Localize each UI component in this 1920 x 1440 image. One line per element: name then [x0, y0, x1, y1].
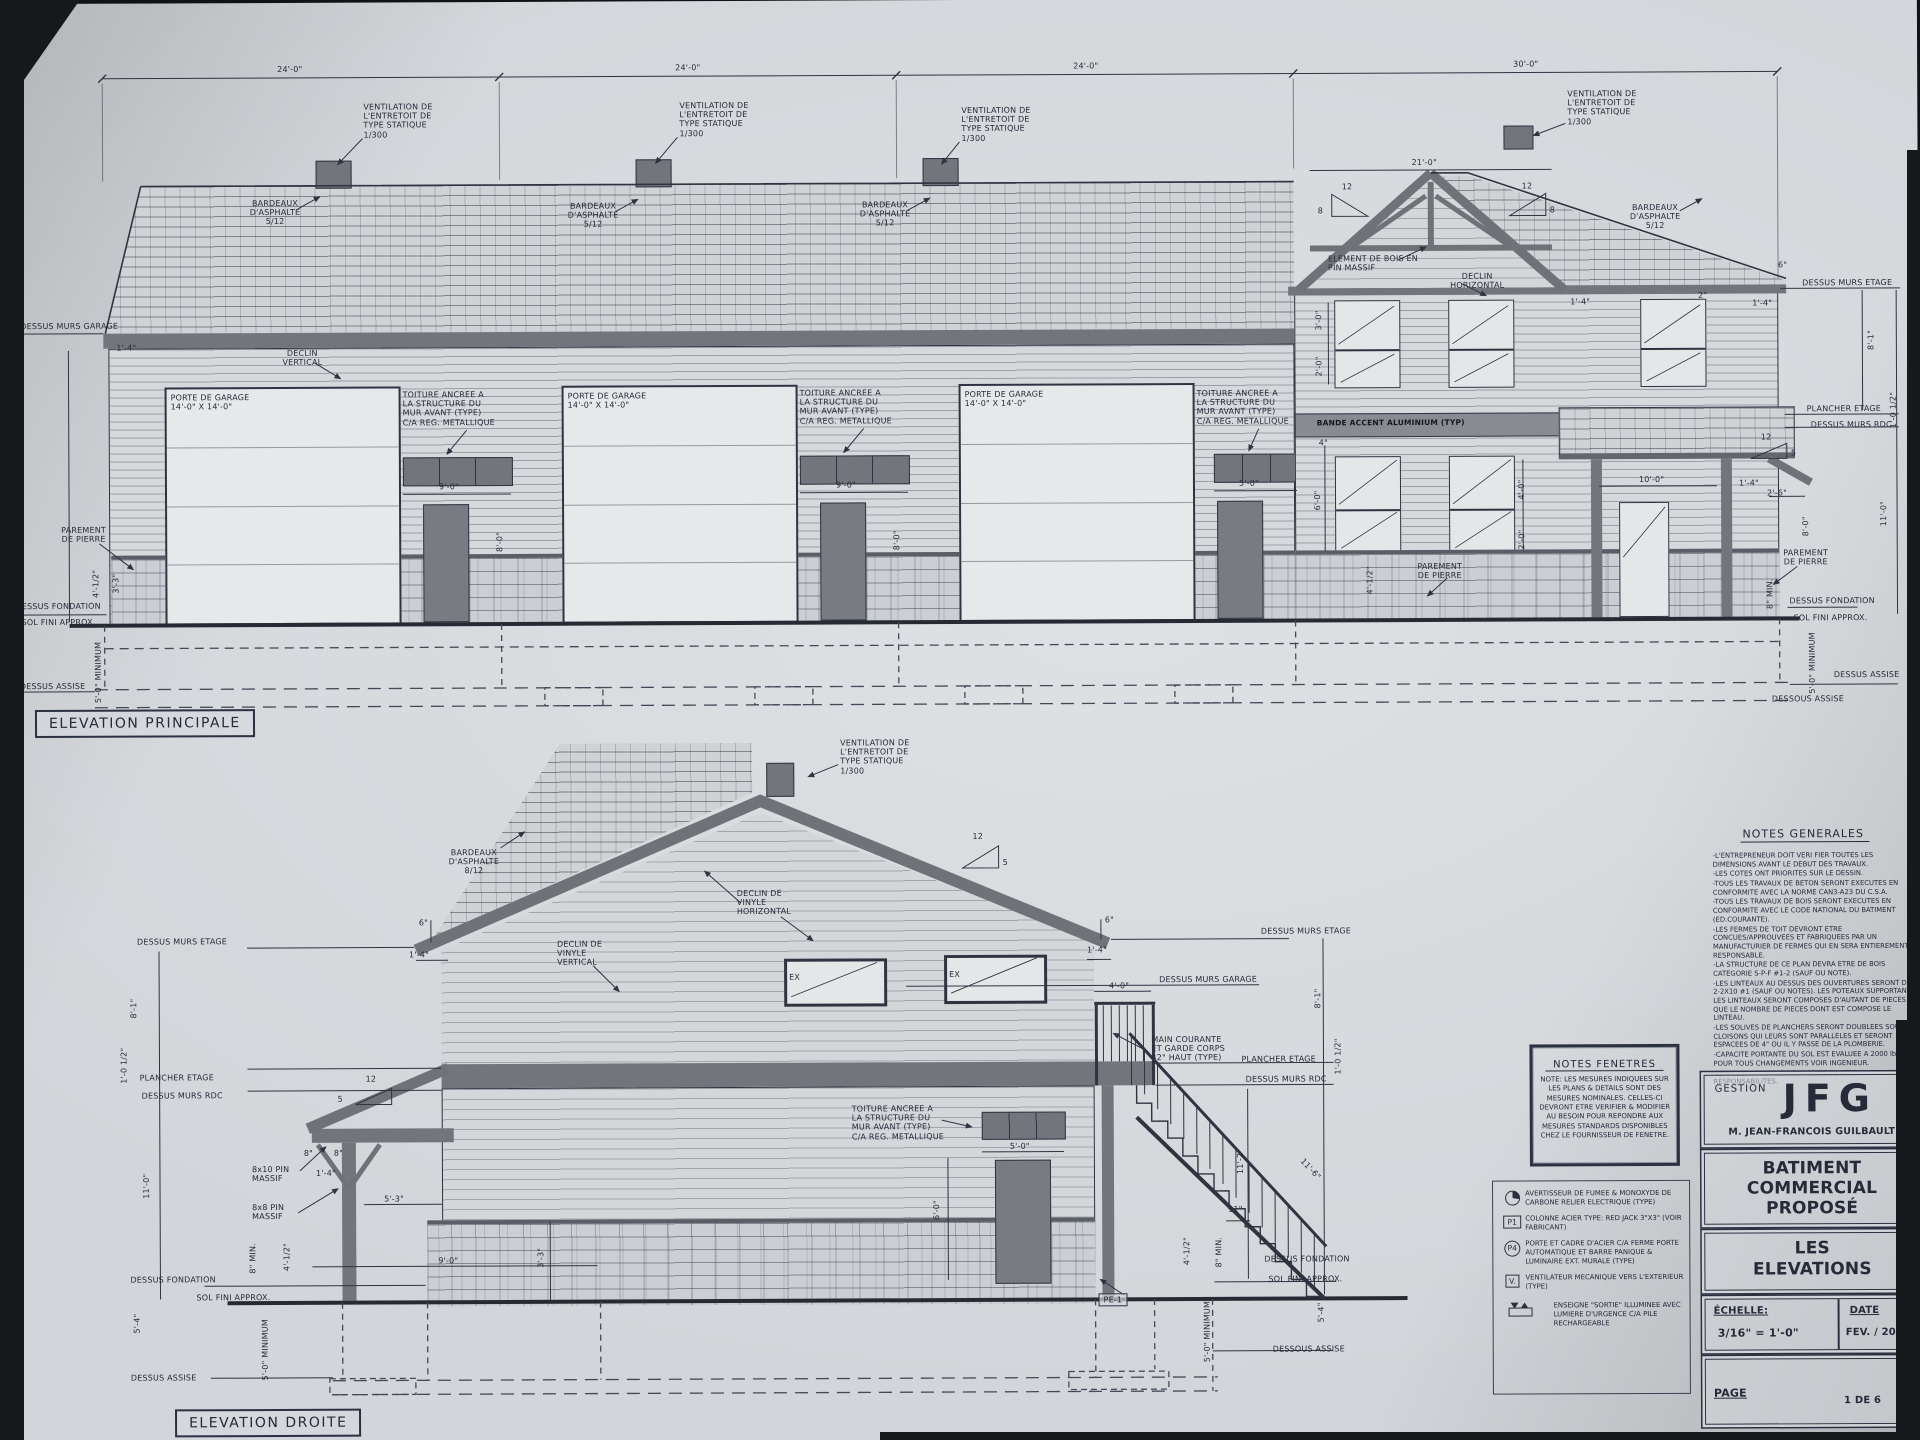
photo-edge-bottom [880, 1432, 1920, 1440]
photo-edge-left [0, 0, 24, 1440]
legend-item: AVERTISSEUR DE FUMEE & MONOXYDE DE CARBO… [1499, 1189, 1683, 1208]
lower-window [1449, 456, 1515, 554]
level-label: DESSOUS ASSISE [1772, 694, 1844, 704]
entry-canopy [982, 1112, 1066, 1140]
dim-label: 11'-2" [1236, 1149, 1245, 1174]
level-label: DESSUS FONDATION [15, 602, 100, 612]
landing-post [1102, 1085, 1115, 1297]
stone-note: PAREMENT DE PIERRE [1783, 548, 1828, 567]
note-line: -L'ENTREPRENEUR DOIT VERI FIER TOUTES LE… [1713, 851, 1919, 869]
lower-window [1335, 456, 1401, 554]
legend: AVERTISSEUR DE FUMEE & MONOXYDE DE CARBO… [1492, 1180, 1691, 1395]
dim-label: 11'-0" [1879, 501, 1888, 526]
slope-label: 5 [338, 1095, 343, 1104]
note-line: -LES COTES ONT PRIORITES SUR LE DESSIN. [1713, 869, 1919, 879]
upper-window [1334, 300, 1400, 388]
floor-band [441, 1061, 1153, 1088]
porch-door [1619, 502, 1670, 617]
shingle-note: BARDEAUX D'ASPHALTE 8/12 [449, 848, 500, 876]
level-label: DESSUS ASSISE [131, 1373, 197, 1382]
dim-label: 8'-1" [129, 999, 138, 1019]
vent-note: VENTILATION DE L'ENTRETOIT DE TYPE STATI… [679, 101, 749, 138]
door-label: PORTE DE GARAGE 14'-0" X 14'-0" [965, 390, 1044, 409]
dim-label: 1'-4" [116, 344, 136, 353]
dim-label: 8" MIN. [1214, 1237, 1223, 1268]
dim-label: 1'-4" [1570, 297, 1590, 306]
slope-label: 8 [1318, 206, 1323, 215]
scale-value: 3/16" = 1'-0" [1718, 1327, 1799, 1340]
dim-label: 4" [1319, 438, 1328, 447]
dim-label: 8'-0" [1801, 516, 1810, 536]
scale-label: ÉCHELLE: [1714, 1305, 1769, 1317]
garage-roof-vent [636, 159, 672, 187]
level-label: PLANCHER ETAGE [1807, 404, 1881, 414]
shingle-note: BARDEAUX D'ASPHALTE 5/12 [250, 199, 301, 227]
slope-label: 5 [1791, 448, 1796, 457]
smoke-detector-icon [1505, 1191, 1520, 1206]
dim-label: 8" MIN. [1765, 578, 1774, 609]
dim-label: 24'-0" [277, 65, 302, 74]
titleblock-scale-date: ÉCHELLE: 3/16" = 1'-0" DATE FEV. / 2025 [1705, 1298, 1920, 1351]
ventilator-icon: V. [1505, 1274, 1520, 1287]
garage-door-1 [165, 386, 402, 625]
porch-post-8x8 [342, 1143, 357, 1301]
legend-item: ENSEIGNE "SORTIE" ILLUMINEE AVEC LUMIERE… [1500, 1301, 1684, 1329]
elevation-principale-title: ELEVATION PRINCIPALE [35, 709, 255, 738]
stone-base [794, 552, 959, 625]
note-line: -TOUS LES TRAVAUX DE BOIS SERONT EXECUTE… [1713, 897, 1919, 924]
man-door-1 [423, 504, 470, 622]
dim-label: 8" [304, 1149, 313, 1158]
siding-note: DECLIN DE VINYLE VERTICAL [557, 940, 602, 968]
titleblock-project: BATIMENT COMMERCIAL PROPOSÉ [1704, 1152, 1920, 1225]
dim-label: 5'-0" MINIMUM [1203, 1301, 1212, 1362]
dim-label: 24'-0" [675, 63, 700, 72]
dim-label: 11'-0" [142, 1174, 151, 1199]
firm-logo: JFG [1783, 1077, 1878, 1121]
accent-band-label: BANDE ACCENT ALUMINIUM (TYP) [1317, 419, 1465, 428]
anchor-note: TOITURE ANCREE A LA STRUCTURE DU MUR AVA… [852, 1104, 944, 1141]
titleblock-page: PAGE 1 DE 6 [1705, 1358, 1920, 1425]
slope-label: 5 [1003, 858, 1008, 867]
note-line: -LES SOLIVES DE PLANCHERS SERONT DOUBLEE… [1713, 1023, 1919, 1050]
level-label: SOL FINI APPROX. [196, 1293, 270, 1303]
legend-item: P1 COLONNE ACIER TYPE: RED JACK 3"X3" (V… [1499, 1214, 1683, 1233]
porch-pent-roof [1559, 406, 1795, 459]
house-roof-vent [1503, 125, 1533, 149]
dim-label: 5'-0" [1010, 1142, 1030, 1151]
note-line: -CAPACITE PORTANTE DU SOL EST EVALUEE A … [1713, 1050, 1919, 1068]
anchor-note: TOITURE ANCREE A LA STRUCTURE DU MUR AVA… [800, 388, 892, 425]
dim-label: 2'-6" [1767, 488, 1787, 497]
dim-label: 9'-0" [836, 480, 856, 489]
vent-note: VENTILATION DE L'ENTRETOIT DE TYPE STATI… [840, 738, 910, 775]
dim-label: 4'-0" [1517, 480, 1526, 500]
existing-window-label: EX [949, 970, 960, 979]
notes-fenetres: NOTES FENETRES NOTE: LES MESURES INDIQUE… [1529, 1044, 1680, 1167]
door-label: PORTE DE GARAGE 14'-0" X 14'-0" [171, 393, 250, 412]
shingle-note: BARDEAUX D'ASPHALTE 5/12 [860, 200, 911, 228]
dim-label: 6" [419, 918, 428, 927]
firm-client: M. JEAN-FRANCOIS GUILBAULT [1705, 1127, 1919, 1139]
siding-note: DECLIN DE VINYLE HORIZONTAL [737, 889, 791, 917]
slope-label: 12 [1342, 182, 1353, 191]
shingle-note: BARDEAUX D'ASPHALTE 5/12 [1630, 203, 1681, 231]
ridge-vent [766, 763, 794, 797]
dim-label: 3'-0" [1314, 310, 1323, 330]
dim-label: 1'-0 1/2" [119, 1048, 128, 1084]
dim-label: 21'-0" [1412, 158, 1437, 167]
dim-label: 2" [1698, 291, 1707, 300]
garage-roof-vent [316, 161, 352, 189]
dim-label: 5'-4" [1317, 1302, 1326, 1322]
dim-label: 8" MIN. [248, 1243, 257, 1274]
level-label: DESSUS FONDATION [130, 1275, 215, 1285]
level-label: DESSUS MURS ETAGE [137, 937, 227, 947]
dim-label: 11'-6" [1299, 1157, 1323, 1182]
slope-label: 12 [1522, 181, 1533, 190]
anchor-note: TOITURE ANCREE A LA STRUCTURE DU MUR AVA… [1197, 389, 1289, 426]
dim-label: 5'-0" MINIMUM [94, 642, 103, 703]
dim-label: 1'-4" [1752, 298, 1772, 307]
level-label: DESSUS ASSISE [1834, 670, 1900, 679]
dim-label: 10'-0" [1639, 475, 1664, 484]
notes-fenetres-heading: NOTES FENETRES [1545, 1059, 1664, 1072]
man-door-3 [1217, 501, 1264, 619]
level-label: PLANCHER ETAGE [1241, 1054, 1315, 1064]
dim-label: 1'-4" [409, 950, 429, 959]
date-label: DATE [1850, 1305, 1880, 1317]
dim-label: 6'-0" [932, 1200, 941, 1220]
level-label: DESSUS FONDATION [1264, 1254, 1349, 1264]
notes-fenetres-body: NOTE: LES MESURES INDIQUEES SUR LES PLAN… [1539, 1075, 1671, 1141]
slope-label: 8 [1550, 205, 1555, 214]
firm-gestion: GESTION [1715, 1083, 1767, 1095]
dim-label: 4'-1/2" [1365, 566, 1374, 594]
legend-item: V. VENTILATEUR MECANIQUE VERS L'EXTERIEU… [1499, 1273, 1683, 1292]
dim-label: 8" [334, 1149, 343, 1158]
ex-window [944, 955, 1047, 1004]
dim-label: 8'-0" [495, 532, 504, 552]
level-label: DESSUS MURS GARAGE [20, 322, 118, 332]
porch-post [1721, 459, 1733, 617]
dim-label: 1'-4" [1739, 479, 1759, 488]
dim-label: 1'-0 1/2" [1889, 392, 1898, 428]
level-label: SOL FINI APPROX. [1268, 1274, 1342, 1284]
garage-door-2 [562, 385, 799, 624]
sheet-title: LES ELEVATIONS [1705, 1238, 1919, 1281]
dim-label: 3'-3" [536, 1248, 545, 1268]
dim-label: 8'-0" [892, 530, 901, 550]
photo-edge-bottomright [1896, 1020, 1920, 1440]
page-label: PAGE [1714, 1388, 1747, 1401]
dim-label: 9'-0" [438, 1256, 458, 1265]
truss-note: ELEMENT DE BOIS EN PIN MASSIF [1328, 254, 1418, 273]
note-line: -TOUS LES TRAVAUX DE BETON SERONT EXECUT… [1713, 879, 1919, 897]
level-label: DESSOUS ASSISE [1273, 1344, 1345, 1354]
p4-door-icon: P4 [1504, 1240, 1520, 1256]
door-label: PORTE DE GARAGE 14'-0" X 14'-0" [568, 391, 647, 410]
blueprint-photo: { "titles": { "principale": "ELEVATION P… [0, 0, 1920, 1440]
project-title: BATIMENT COMMERCIAL PROPOSÉ [1705, 1158, 1919, 1219]
dim-label: 5'-0" MINIMUM [1808, 632, 1817, 693]
timber-note: 8x8 PIN MASSIF [252, 1203, 284, 1222]
side-man-door [995, 1160, 1052, 1284]
siding-note: DECLIN VERTICAL [282, 349, 322, 368]
dim-label: 2'-0" [1314, 356, 1323, 376]
dim-label: 2'-0" [1517, 530, 1526, 550]
ex-window [784, 958, 887, 1006]
legend-text: VENTILATEUR MECANIQUE VERS L'EXTERIEUR (… [1525, 1273, 1683, 1292]
notes-generales-heading: NOTES GENERALES [1740, 827, 1870, 843]
legend-text: PORTE ET CADRE D'ACIER C/A FERME PORTE A… [1525, 1239, 1683, 1267]
level-label: PLANCHER ETAGE [140, 1073, 214, 1083]
garage-roof-vent [923, 158, 959, 186]
titleblock-firm: GESTION JFG M. JEAN-FRANCOIS GUILBAULT [1704, 1074, 1920, 1145]
siding-note: DECLIN HORIZONTAL [1450, 272, 1504, 291]
vent-note: VENTILATION DE L'ENTRETOIT DE TYPE STATI… [961, 106, 1031, 143]
dim-label: 8'-1" [1313, 988, 1322, 1008]
dim-label: 4'-1/2" [282, 1243, 291, 1271]
pe1-marker: PE-1 [1099, 1293, 1128, 1306]
level-label: SOL FINI APPROX. [22, 618, 96, 628]
dim-label: 1'-4" [316, 1169, 336, 1178]
dim-label: 4'-1/2" [1182, 1237, 1191, 1265]
upper-window [1448, 300, 1514, 388]
stone-note: PAREMENT DE PIERRE [1417, 562, 1462, 581]
dim-label: 5'-3" [384, 1194, 404, 1203]
anchor-note: TOITURE ANCREE A LA STRUCTURE DU MUR AVA… [403, 390, 495, 427]
level-label: DESSUS ASSISE [20, 682, 86, 691]
dim-label: 1'-4" [1087, 945, 1107, 954]
dim-label: 1'-0 1/2" [1333, 1038, 1342, 1074]
dim-label: 4'-0" [1109, 981, 1129, 990]
dim-label: 30'-0" [1513, 59, 1538, 68]
slope-label: 12 [366, 1075, 377, 1084]
elevation-droite-title: ELEVATION DROITE [175, 1409, 361, 1438]
garage-door-3 [959, 383, 1196, 622]
dim-label: 5'-0" [1239, 479, 1259, 488]
vent-note: VENTILATION DE L'ENTRETOIT DE TYPE STATI… [363, 102, 433, 139]
exit-sign-icon [1509, 1302, 1531, 1316]
legend-item: P4 PORTE ET CADRE D'ACIER C/A FERME PORT… [1499, 1239, 1683, 1267]
note-line: -LA STRUCTURE DE CE PLAN DEVRA ETRE DE B… [1713, 960, 1919, 978]
dim-label: 4'-1/2" [91, 570, 100, 598]
level-label: DESSUS MURS GARAGE [1159, 975, 1257, 985]
railing-note: MAIN COURANTE ET GARDE CORPS 42" HAUT (T… [1151, 1035, 1225, 1063]
notes-generales: NOTES GENERALES -L'ENTREPRENEUR DOIT VER… [1712, 822, 1919, 1087]
slope-label: 12 [1761, 432, 1772, 441]
note-line: -LES FERMES DE TOIT DEVRONT ETRE CONCUES… [1713, 924, 1919, 960]
level-label: DESSUS MURS RDC [1811, 420, 1892, 430]
legend-text: COLONNE ACIER TYPE: RED JACK 3"X3" (VOIR… [1525, 1214, 1683, 1233]
dim-label: 6" [1105, 915, 1114, 924]
timber-note: 8x10 PIN MASSIF [252, 1165, 289, 1184]
dim-label: 5'-0" MINIMUM [261, 1319, 270, 1380]
shingle-note: BARDEAUX D'ASPHALTE 5/12 [568, 201, 619, 229]
legend-text: AVERTISSEUR DE FUMEE & MONOXYDE DE CARBO… [1525, 1189, 1683, 1208]
dim-label: 3'-3" [111, 574, 120, 594]
level-label: DESSUS MURS ETAGE [1802, 278, 1892, 288]
dim-label: 6'-0" [1313, 490, 1322, 510]
man-door-2 [820, 502, 867, 620]
dim-label: 6" [1778, 260, 1787, 269]
level-label: DESSUS MURS ETAGE [1261, 926, 1351, 936]
existing-window-label: EX [789, 973, 800, 982]
slope-label: 12 [972, 832, 983, 841]
level-label: DESSUS MURS RDC [142, 1091, 223, 1101]
legend-text: ENSEIGNE "SORTIE" ILLUMINEE AVEC LUMIERE… [1554, 1301, 1684, 1328]
level-label: SOL FINI APPROX. [1794, 613, 1868, 623]
titleblock-sheet: LES ELEVATIONS [1704, 1232, 1920, 1291]
drawing-sheet: 24'-0" 24'-0" 24'-0" 30'-0" VENTILATION … [0, 0, 1920, 1440]
level-label: DESSUS FONDATION [1789, 596, 1874, 606]
stone-note: PAREMENT DE PIERRE [61, 526, 106, 545]
stone-base [397, 554, 562, 627]
note-line: -LES LINTEAUX AU DESSUS DES OUVERTURES S… [1713, 978, 1919, 1022]
dim-label: 9'-0" [439, 482, 459, 491]
upper-window [1640, 299, 1706, 387]
porch-post [1591, 459, 1603, 617]
dim-label: 11" [1228, 1205, 1243, 1214]
level-label: DESSUS MURS RDC [1246, 1074, 1327, 1084]
porch-beam [312, 1128, 454, 1143]
vent-note: VENTILATION DE L'ENTRETOIT DE TYPE STATI… [1567, 89, 1637, 126]
page-value: 1 DE 6 [1844, 1395, 1881, 1407]
dim-label: 8'-1" [1866, 330, 1875, 350]
p1-column-icon: P1 [1504, 1215, 1521, 1228]
dim-label: 5'-4" [133, 1314, 142, 1334]
dim-label: 24'-0" [1073, 61, 1098, 70]
